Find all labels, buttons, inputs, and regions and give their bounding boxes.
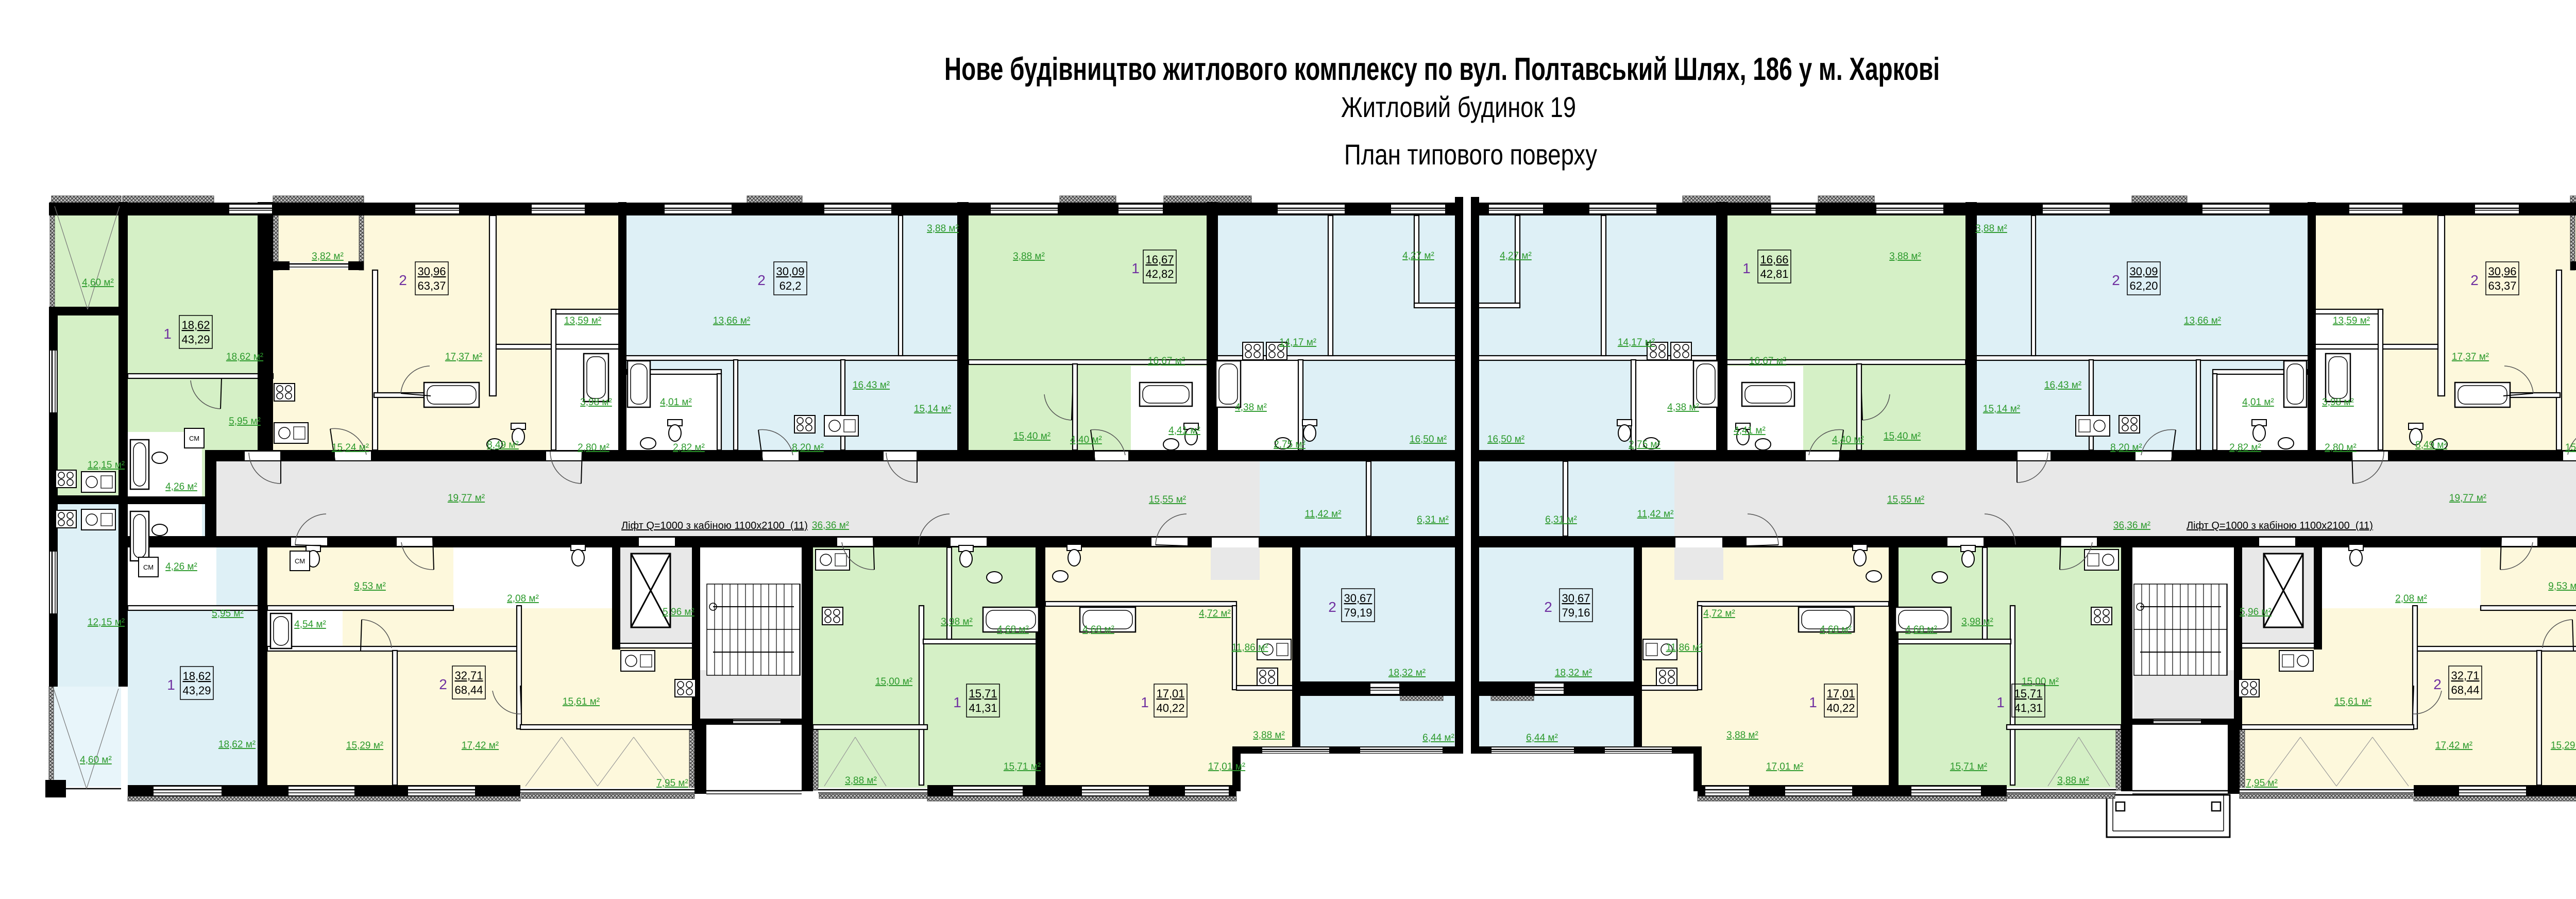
svg-text:4,38 м²: 4,38 м² [1235,402,1267,413]
svg-text:3,88 м²: 3,88 м² [1975,223,2007,234]
svg-text:4,68 м²: 4,68 м² [1820,624,1852,635]
svg-text:11,42 м²: 11,42 м² [1637,509,1674,520]
svg-text:42,81: 42,81 [1760,268,1788,280]
svg-text:17,01: 17,01 [1826,687,1855,700]
svg-text:41,31: 41,31 [969,702,997,714]
svg-text:6,44 м²: 6,44 м² [1422,732,1454,743]
svg-text:2: 2 [399,272,407,288]
svg-text:2,08 м²: 2,08 м² [507,593,539,604]
svg-text:15,00 м²: 15,00 м² [875,676,912,687]
svg-text:3,98 м²: 3,98 м² [1961,617,1993,627]
svg-text:3,98 м²: 3,98 м² [580,397,612,408]
svg-text:30,09: 30,09 [776,265,804,278]
svg-text:4,38 м²: 4,38 м² [1667,402,1699,413]
svg-text:СМ: СМ [295,557,305,565]
svg-text:3,88 м²: 3,88 м² [1253,730,1285,741]
svg-text:4,26 м²: 4,26 м² [165,561,197,572]
svg-text:6,44 м²: 6,44 м² [1526,732,1558,743]
svg-text:18,32 м²: 18,32 м² [1555,668,1592,678]
svg-text:12,15 м²: 12,15 м² [88,460,125,471]
svg-text:3,88 м²: 3,88 м² [1889,251,1921,262]
svg-text:40,22: 40,22 [1156,702,1184,714]
svg-text:1: 1 [163,326,172,342]
svg-text:4,68 м²: 4,68 м² [997,624,1029,635]
svg-text:32,71: 32,71 [2451,669,2479,682]
svg-text:36,36 м²: 36,36 м² [2113,520,2150,531]
svg-text:1: 1 [1131,260,1140,276]
svg-text:3,88 м²: 3,88 м² [1726,730,1758,741]
svg-text:15,71: 15,71 [2014,687,2042,700]
svg-text:43,29: 43,29 [182,684,211,697]
svg-text:4,01 м²: 4,01 м² [2242,397,2274,408]
svg-text:12,15 м²: 12,15 м² [88,617,125,628]
svg-text:2: 2 [1544,599,1552,615]
svg-text:4,40 м²: 4,40 м² [1832,435,1864,445]
svg-text:15,71 м²: 15,71 м² [1950,761,1987,772]
svg-text:15,24 м²: 15,24 м² [2565,442,2576,453]
svg-text:30,67: 30,67 [1344,592,1372,605]
svg-text:2,80 м²: 2,80 м² [2325,442,2357,453]
svg-text:17,01 м²: 17,01 м² [1208,761,1245,772]
svg-text:40,22: 40,22 [1826,702,1855,714]
svg-text:11,86 м²: 11,86 м² [1666,642,1703,653]
svg-text:17,37 м²: 17,37 м² [2452,352,2489,362]
svg-text:42,82: 42,82 [1145,268,1174,280]
svg-text:13,59 м²: 13,59 м² [564,315,601,326]
svg-text:16,67 м²: 16,67 м² [1148,356,1185,367]
svg-text:1: 1 [1996,694,2005,710]
svg-text:4,01 м²: 4,01 м² [660,397,692,408]
svg-text:15,71 м²: 15,71 м² [1004,761,1041,772]
svg-text:9,53 м²: 9,53 м² [2548,581,2576,592]
svg-text:15,00 м²: 15,00 м² [2022,676,2059,687]
svg-text:1: 1 [953,694,961,710]
svg-text:19,77 м²: 19,77 м² [2449,493,2486,504]
svg-text:4,72 м²: 4,72 м² [1703,608,1735,619]
svg-text:15,29 м²: 15,29 м² [2551,740,2576,751]
svg-text:13,66 м²: 13,66 м² [2184,315,2221,326]
svg-text:32,71: 32,71 [454,669,483,682]
svg-text:4,41 м²: 4,41 м² [1734,425,1766,436]
svg-text:Нове будівництво житлового ком: Нове будівництво житлового комплексу по … [944,52,1940,87]
svg-text:15,61 м²: 15,61 м² [563,696,600,707]
svg-text:2: 2 [2112,272,2120,288]
svg-text:2,75 м²: 2,75 м² [1274,439,1306,450]
svg-text:1: 1 [1809,694,1817,710]
svg-text:18,62 м²: 18,62 м² [218,739,256,750]
svg-text:4,72 м²: 4,72 м² [1199,608,1231,619]
svg-text:16,43 м²: 16,43 м² [2044,380,2081,391]
svg-text:5,96 м²: 5,96 м² [663,607,694,618]
svg-text:4,68 м²: 4,68 м² [1905,624,1937,635]
svg-text:8,49 м²: 8,49 м² [2415,440,2447,451]
svg-text:62,2: 62,2 [779,279,802,292]
svg-text:3,88 м²: 3,88 м² [927,223,959,234]
svg-text:17,42 м²: 17,42 м² [2435,740,2472,751]
svg-text:4,54 м²: 4,54 м² [294,619,326,630]
svg-text:16,50 м²: 16,50 м² [1487,434,1524,445]
svg-text:63,37: 63,37 [417,279,446,292]
svg-text:18,62: 18,62 [182,670,211,682]
svg-text:18,32 м²: 18,32 м² [1388,668,1426,678]
svg-text:2: 2 [1328,599,1336,615]
svg-text:4,68 м²: 4,68 м² [1082,624,1114,635]
svg-text:16,66: 16,66 [1760,253,1788,266]
svg-text:15,55 м²: 15,55 м² [1887,494,1924,505]
svg-text:3,98 м²: 3,98 м² [2322,397,2354,408]
svg-text:15,71: 15,71 [969,687,997,700]
svg-text:30,96: 30,96 [2488,265,2516,278]
svg-text:2,75 м²: 2,75 м² [1629,439,1660,450]
svg-text:15,40 м²: 15,40 м² [1884,431,1921,442]
svg-text:19,77 м²: 19,77 м² [448,493,485,504]
svg-text:17,42 м²: 17,42 м² [462,740,499,751]
svg-text:11,42 м²: 11,42 м² [1305,509,1342,520]
svg-text:Ліфт Q=1000 з кабіною 1100х210: Ліфт Q=1000 з кабіною 1100х2100 (11) [2187,520,2373,531]
svg-text:15,29 м²: 15,29 м² [346,740,383,751]
svg-text:4,41 м²: 4,41 м² [1168,425,1200,436]
svg-text:16,50 м²: 16,50 м² [1410,434,1447,445]
svg-text:68,44: 68,44 [2451,684,2479,696]
svg-text:СМ: СМ [143,563,154,571]
svg-text:2,08 м²: 2,08 м² [2395,593,2427,604]
svg-text:68,44: 68,44 [454,684,483,696]
svg-text:18,62 м²: 18,62 м² [226,352,263,362]
svg-text:79,16: 79,16 [1562,606,1590,619]
svg-text:3,82 м²: 3,82 м² [312,251,344,262]
svg-text:1: 1 [1742,260,1751,276]
svg-text:5,96 м²: 5,96 м² [2240,607,2272,618]
svg-text:6,31 м²: 6,31 м² [1417,514,1449,525]
svg-text:17,01 м²: 17,01 м² [1766,761,1803,772]
svg-text:7,95 м²: 7,95 м² [656,778,688,789]
svg-text:41,31: 41,31 [2014,702,2042,714]
svg-text:14,17 м²: 14,17 м² [1618,337,1655,348]
svg-text:2,80 м²: 2,80 м² [578,442,609,453]
svg-text:5,95 м²: 5,95 м² [212,608,244,619]
svg-text:5,95 м²: 5,95 м² [229,416,261,427]
svg-text:9,53 м²: 9,53 м² [354,581,386,592]
svg-text:15,61 м²: 15,61 м² [2334,696,2371,707]
svg-text:30,09: 30,09 [2129,265,2158,278]
svg-text:16,67 м²: 16,67 м² [1749,356,1786,367]
svg-text:2: 2 [2470,272,2479,288]
svg-text:8,20 м²: 8,20 м² [792,442,824,453]
svg-text:17,01: 17,01 [1156,687,1184,700]
svg-text:4,60 м²: 4,60 м² [80,755,112,765]
svg-text:16,43 м²: 16,43 м² [853,380,890,391]
svg-text:11,86 м²: 11,86 м² [1232,642,1268,653]
svg-text:18,62: 18,62 [181,319,210,331]
svg-text:13,66 м²: 13,66 м² [713,315,750,326]
svg-text:15,14 м²: 15,14 м² [914,404,951,414]
svg-text:13,59 м²: 13,59 м² [2333,315,2370,326]
svg-text:15,55 м²: 15,55 м² [1149,494,1186,505]
svg-text:СМ: СМ [189,435,199,442]
svg-text:3,88 м²: 3,88 м² [2057,775,2089,786]
svg-text:Житловий будинок 19: Житловий будинок 19 [1341,91,1576,123]
svg-text:36,36 м²: 36,36 м² [812,520,849,531]
svg-text:15,14 м²: 15,14 м² [1983,404,2020,414]
svg-text:16,67: 16,67 [1145,253,1174,266]
svg-text:79,19: 79,19 [1344,606,1372,619]
svg-text:6,31 м²: 6,31 м² [1545,514,1577,525]
svg-text:2,82 м²: 2,82 м² [673,442,705,453]
svg-text:Ліфт Q=1000 з кабіною 1100х210: Ліфт Q=1000 з кабіною 1100х2100 (11) [621,520,808,531]
svg-text:1: 1 [1141,694,1149,710]
svg-text:4,27 м²: 4,27 м² [1402,251,1434,261]
svg-text:3,88 м²: 3,88 м² [845,775,877,786]
svg-text:4,40 м²: 4,40 м² [1070,435,1102,445]
svg-text:8,49 м²: 8,49 м² [487,440,519,451]
svg-text:План типового поверху: План типового поверху [1344,138,1597,171]
svg-text:15,24 м²: 15,24 м² [332,442,369,453]
svg-text:4,60 м²: 4,60 м² [82,277,114,288]
svg-text:4,26 м²: 4,26 м² [165,481,197,492]
svg-text:8,20 м²: 8,20 м² [2110,442,2142,453]
svg-text:2,82 м²: 2,82 м² [2229,442,2261,453]
svg-text:1: 1 [167,677,175,693]
svg-text:2: 2 [2433,676,2442,692]
svg-text:3,88 м²: 3,88 м² [1013,251,1045,262]
svg-text:4,27 м²: 4,27 м² [1500,251,1532,261]
svg-text:2: 2 [757,272,766,288]
svg-text:14,17 м²: 14,17 м² [1279,337,1316,348]
svg-text:3,98 м²: 3,98 м² [941,617,973,627]
svg-text:43,29: 43,29 [181,333,210,346]
svg-text:17,37 м²: 17,37 м² [445,352,482,362]
svg-text:2: 2 [439,676,447,692]
svg-text:30,96: 30,96 [417,265,446,278]
svg-text:30,67: 30,67 [1562,592,1590,605]
svg-text:7,95 м²: 7,95 м² [2246,778,2278,789]
svg-text:62,20: 62,20 [2129,279,2158,292]
svg-text:15,40 м²: 15,40 м² [1013,431,1050,442]
svg-text:63,37: 63,37 [2488,279,2516,292]
